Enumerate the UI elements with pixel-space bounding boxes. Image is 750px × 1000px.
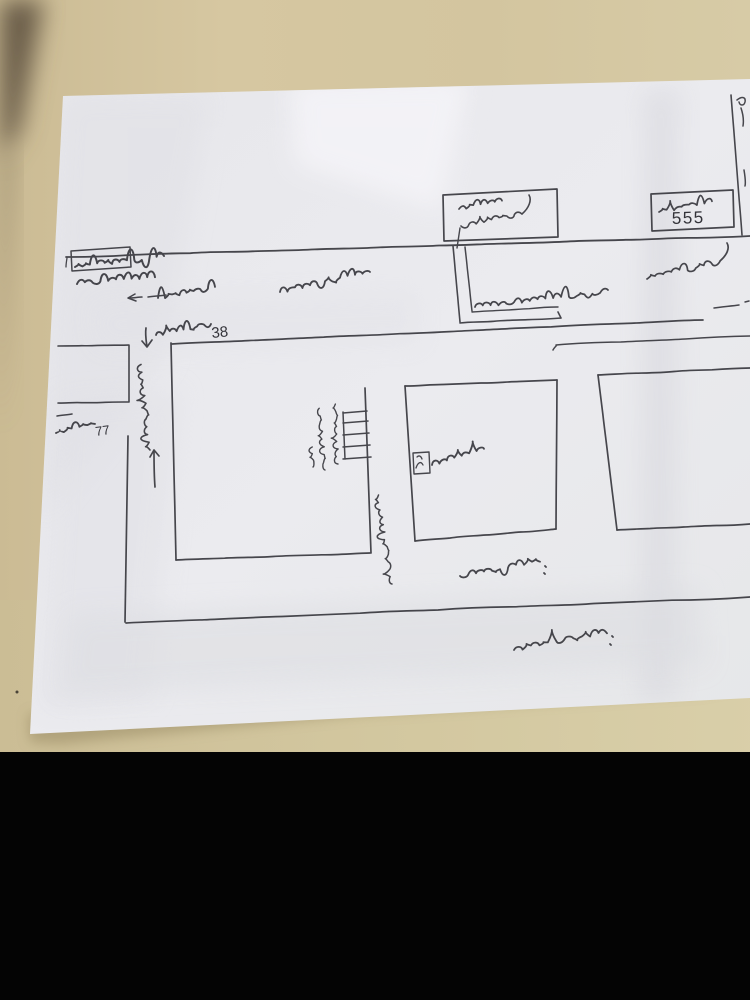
svg-text:77: 77 xyxy=(94,422,110,439)
svg-text:38: 38 xyxy=(211,323,229,342)
svg-text:555: 555 xyxy=(671,208,705,228)
